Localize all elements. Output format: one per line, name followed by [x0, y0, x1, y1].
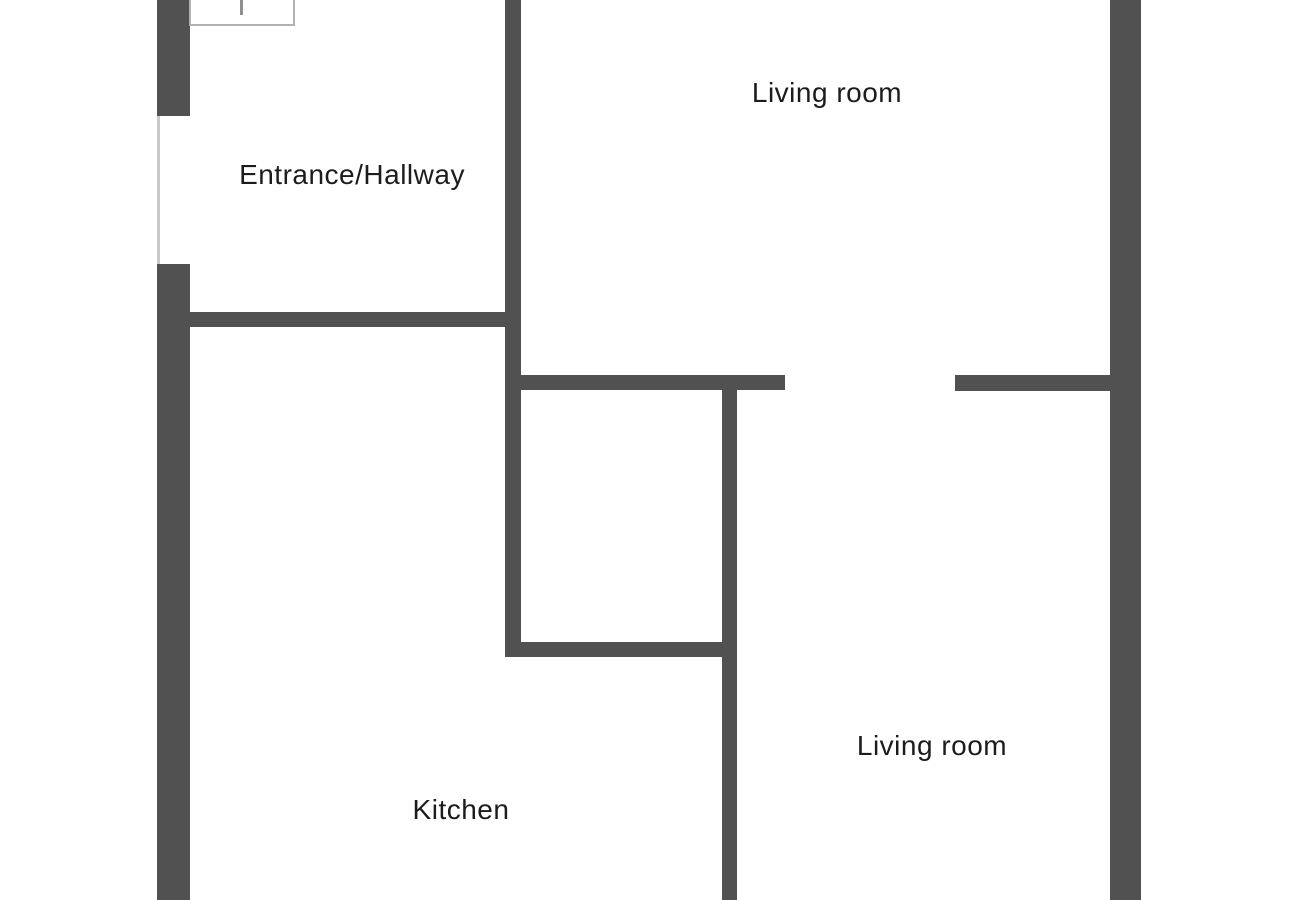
- room-label-living-room-upper: Living room: [752, 77, 902, 109]
- wall-inner-box-top: [505, 375, 785, 390]
- wall-inner-box-right: [722, 375, 737, 900]
- top-window-tick: [240, 0, 243, 15]
- wall-right-stub: [955, 375, 1110, 391]
- left-wall-opening-line: [157, 116, 160, 264]
- wall-right-exterior: [1110, 0, 1141, 900]
- floor-plan-canvas: Living room Entrance/Hallway Kitchen Liv…: [0, 0, 1300, 900]
- wall-central-vertical: [505, 0, 521, 657]
- wall-entrance-kitchen-divider: [190, 312, 521, 327]
- room-label-living-room-lower: Living room: [857, 730, 1007, 762]
- room-label-entrance-hallway: Entrance/Hallway: [239, 159, 465, 191]
- room-label-kitchen: Kitchen: [413, 794, 510, 826]
- wall-left-upper: [157, 0, 190, 116]
- wall-left-lower: [157, 264, 190, 900]
- wall-inner-box-bottom: [505, 642, 737, 657]
